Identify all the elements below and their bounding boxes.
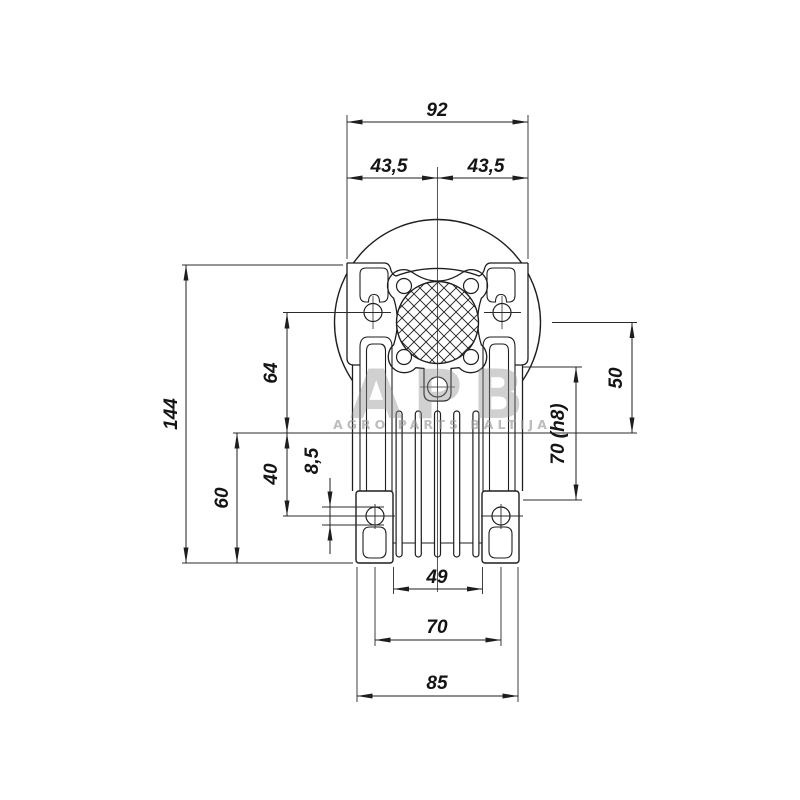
- dim-lower-height-label: 60: [212, 487, 233, 509]
- dim-fin-width-label: 49: [425, 567, 448, 588]
- dim-foot-hole-dia-label: 8,5: [302, 447, 323, 474]
- dim-half-left-label: 43,5: [370, 156, 408, 177]
- dim-foot-hole-height-label: 40: [261, 463, 282, 486]
- technical-drawing: 92 43,5 43,5 144 64 60 40 8,5 50 70 (h8)…: [0, 0, 800, 800]
- dim-spigot-label: 70 (h8): [548, 403, 569, 464]
- watermark-subtitle: AGRO PARTS BALTIJA: [333, 417, 551, 432]
- dim-half-right-label: 43,5: [467, 156, 505, 177]
- bolt-hole-top-left: [397, 279, 412, 294]
- watermark: APB AGRO PARTS BALTIJA: [333, 356, 551, 435]
- dim-total-height-label: 144: [161, 398, 182, 430]
- dim-feet-width-label: 85: [426, 673, 448, 694]
- bolt-hole-top-right: [464, 279, 479, 294]
- technical-drawing-page: 92 43,5 43,5 144 64 60 40 8,5 50 70 (h8)…: [0, 0, 800, 800]
- dim-upper-height-label: 64: [261, 362, 282, 384]
- dim-foot-spacing-label: 70: [426, 617, 448, 638]
- dim-flange-width-label: 92: [426, 100, 448, 121]
- dim-shaft-axis-label: 50: [606, 367, 627, 389]
